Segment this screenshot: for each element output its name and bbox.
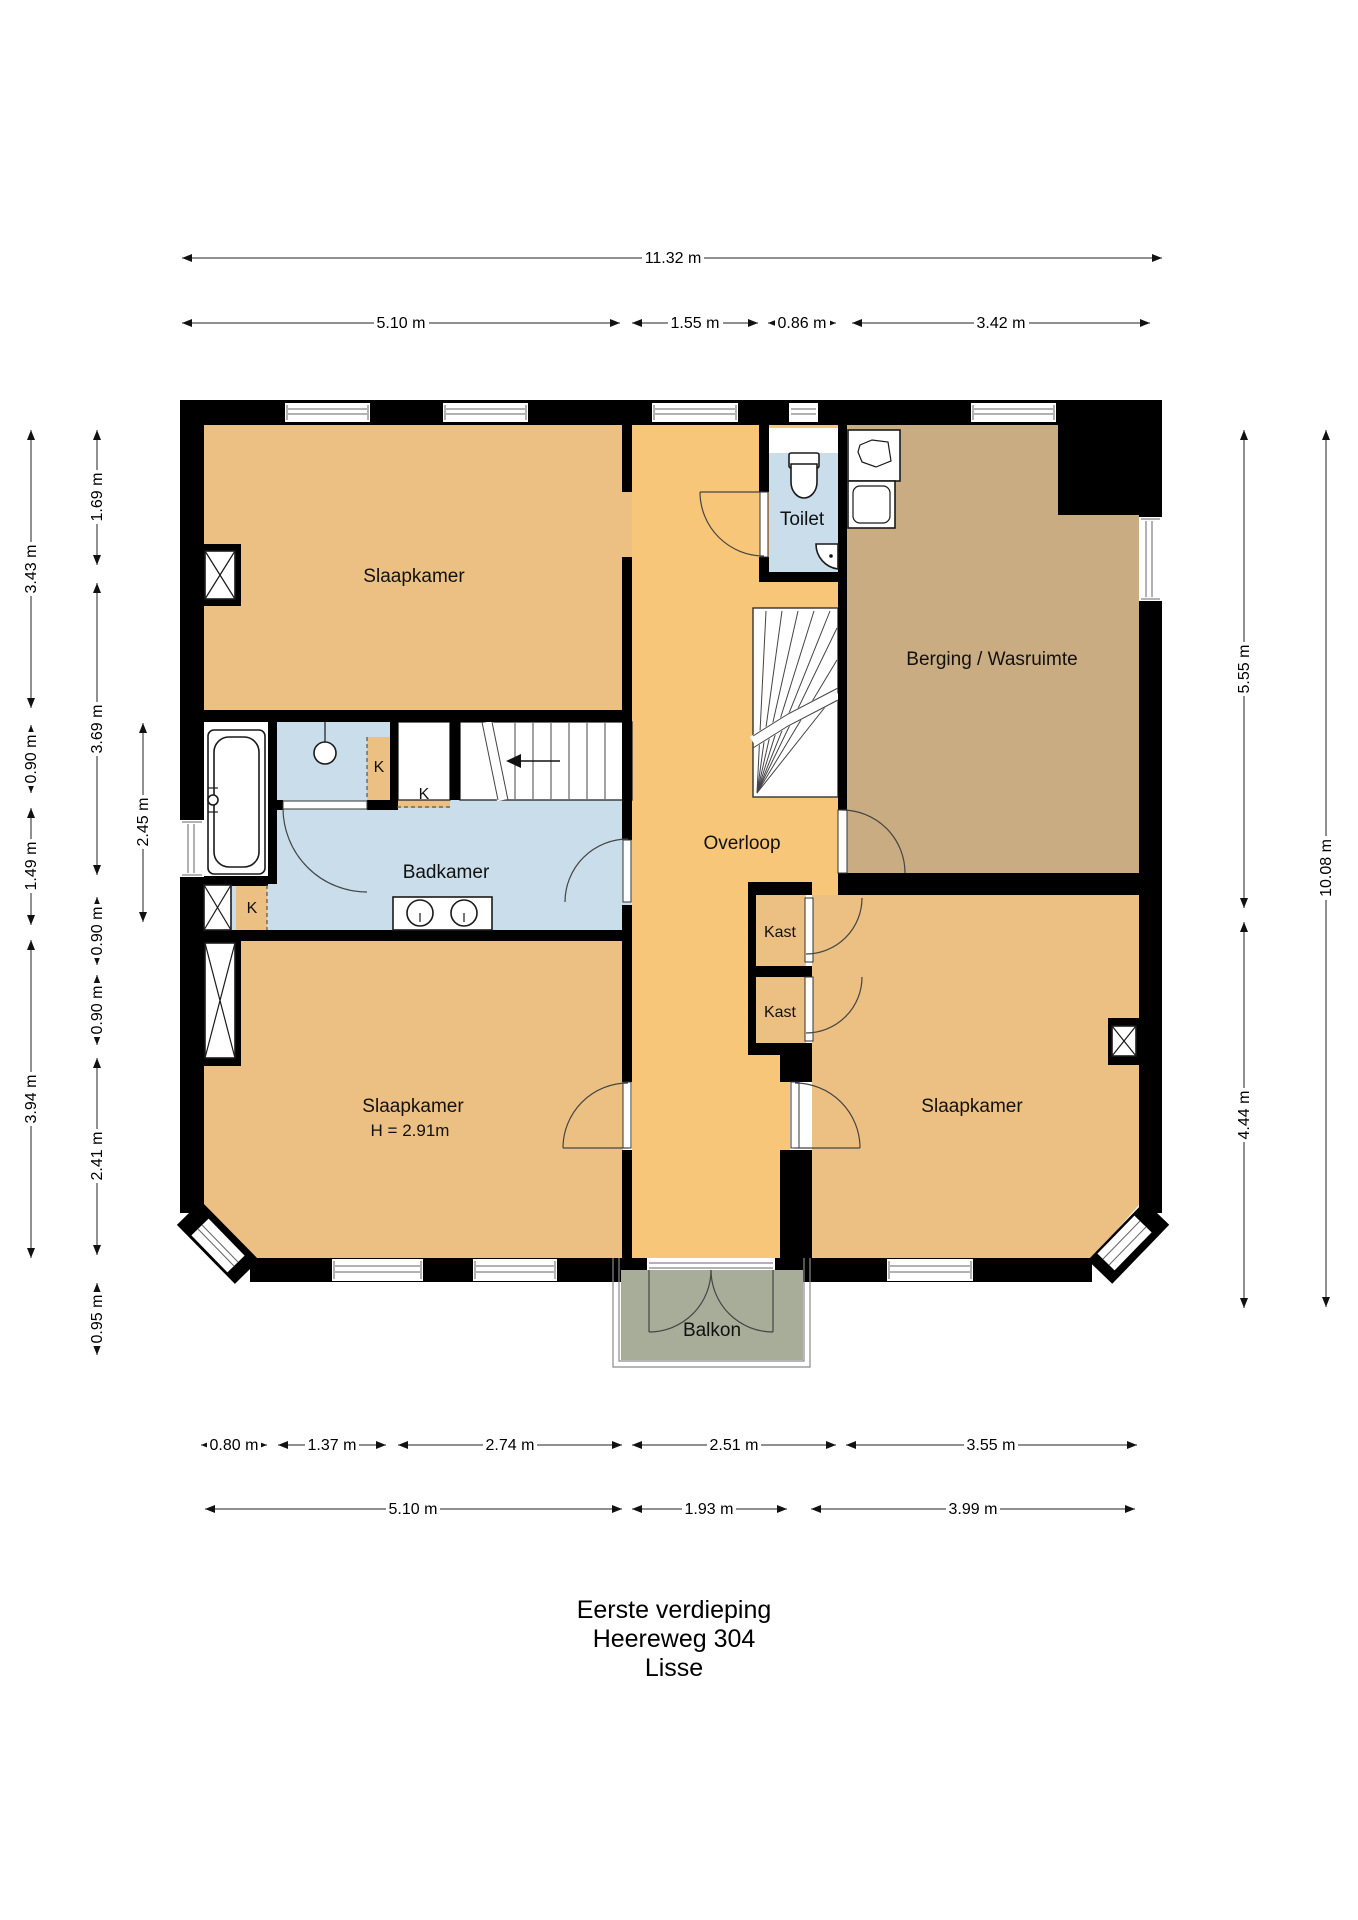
- dim-bottom-l3: 3.99 m: [811, 1501, 1135, 1518]
- floorplan-drawing: Slaapkamer Toilet Berging / Wasruimte Ov…: [0, 0, 1358, 1920]
- dim-left-outer-3: 1.49 m: [23, 808, 40, 925]
- title-address: Heereweg 304: [593, 1625, 756, 1653]
- svg-text:1.49 m: 1.49 m: [23, 842, 40, 891]
- window-bottom-1: [332, 1259, 423, 1281]
- svg-text:2.41 m: 2.41 m: [89, 1132, 106, 1181]
- balkon: [613, 1258, 810, 1367]
- dim-left-outer-1: 3.43 m: [23, 430, 40, 708]
- dim-bottom-u1: 0.80 m: [201, 1437, 267, 1454]
- label-slaapkamer2: Slaapkamer: [362, 1096, 464, 1117]
- svg-text:3.43 m: 3.43 m: [23, 545, 40, 594]
- dim-bottom-l2: 1.93 m: [632, 1501, 787, 1518]
- stairwell-straight-flight: [398, 722, 632, 800]
- dim-right-outer-1: 10.08 m: [1318, 430, 1335, 1307]
- svg-text:3.55 m: 3.55 m: [967, 1437, 1016, 1454]
- svg-text:2.51 m: 2.51 m: [710, 1437, 759, 1454]
- svg-text:1.69 m: 1.69 m: [89, 473, 106, 522]
- bathtub: [208, 730, 265, 874]
- dim-left-middle-2: 3.69 m: [89, 583, 106, 875]
- title-floor: Eerste verdieping: [577, 1596, 772, 1624]
- dim-right-inner-1: 5.55 m: [1236, 430, 1253, 908]
- flue-slaapkamer3: [1112, 1026, 1136, 1056]
- window-top-toilet: [789, 403, 818, 422]
- room-slaapkamer-bottomright: [812, 895, 1139, 1258]
- label-toilet: Toilet: [780, 509, 825, 530]
- svg-text:3.99 m: 3.99 m: [949, 1501, 998, 1518]
- svg-text:0.90 m: 0.90 m: [89, 907, 106, 956]
- svg-text:1.37 m: 1.37 m: [308, 1437, 357, 1454]
- svg-text:0.95 m: 0.95 m: [89, 1295, 106, 1344]
- svg-text:2.74 m: 2.74 m: [486, 1437, 535, 1454]
- dim-left-middle-1: 1.69 m: [89, 430, 106, 565]
- window-top-overloop: [652, 403, 738, 422]
- label-slaapkamer1: Slaapkamer: [363, 566, 465, 587]
- window-bottom-3: [887, 1259, 973, 1281]
- window-bottom-2: [473, 1259, 557, 1281]
- double-washbasin: [393, 897, 492, 930]
- svg-text:0.80 m: 0.80 m: [210, 1437, 259, 1454]
- dim-left-inner-1: 2.45 m: [135, 723, 152, 922]
- flue-slaapkamer2: [199, 935, 241, 1066]
- title-block: Eerste verdieping Heereweg 304 Lisse: [577, 1596, 772, 1682]
- dim-bottom-u5: 3.55 m: [846, 1437, 1137, 1454]
- bathtub-faucet: [208, 795, 218, 805]
- label-overloop: Overloop: [703, 833, 780, 854]
- title-city: Lisse: [645, 1654, 703, 1682]
- toilet-window-recess: [769, 428, 838, 453]
- svg-text:5.10 m: 5.10 m: [377, 315, 426, 332]
- dim-left-middle-5: 2.41 m: [89, 1058, 106, 1255]
- flue-badkamer: [204, 885, 231, 930]
- dim-bottom-l1: 5.10 m: [205, 1501, 622, 1518]
- label-slaapkamer2-height: H = 2.91m: [371, 1121, 450, 1140]
- floorplan-page: Slaapkamer Toilet Berging / Wasruimte Ov…: [0, 0, 1358, 1920]
- label-kast1: Kast: [764, 924, 797, 941]
- window-top-1: [285, 403, 370, 422]
- svg-text:3.94 m: 3.94 m: [23, 1075, 40, 1124]
- dim-right-inner-2: 4.44 m: [1236, 922, 1253, 1308]
- room-fills: [204, 425, 1139, 1258]
- dim-left-middle-3: 0.90 m: [89, 897, 106, 965]
- laundry-sink: [848, 430, 900, 481]
- dimensions-top: 11.32 m 5.10 m 1.55 m 0.86 m 3.42 m: [182, 250, 1162, 332]
- label-kast2: Kast: [764, 1004, 797, 1021]
- dim-top-seg1: 5.10 m: [182, 315, 620, 332]
- dimensions-right: 5.55 m 4.44 m 10.08 m: [1236, 430, 1335, 1308]
- svg-text:0.86 m: 0.86 m: [778, 315, 827, 332]
- label-berging: Berging / Wasruimte: [906, 649, 1077, 670]
- svg-text:1.55 m: 1.55 m: [671, 315, 720, 332]
- dim-left-middle-6: 0.95 m: [89, 1283, 106, 1355]
- flue-slaapkamer1: [199, 544, 241, 606]
- label-k3: K: [247, 900, 258, 917]
- dim-bottom-u4: 2.51 m: [632, 1437, 836, 1454]
- svg-text:5.10 m: 5.10 m: [389, 1501, 438, 1518]
- window-top-berging: [971, 403, 1056, 422]
- stairwell-winder: [753, 608, 838, 797]
- dim-left-outer-2: 0.90 m: [23, 725, 40, 793]
- svg-text:10.08 m: 10.08 m: [1318, 839, 1335, 897]
- window-right-berging: [1139, 517, 1162, 601]
- svg-text:5.55 m: 5.55 m: [1236, 645, 1253, 694]
- dim-left-middle-4: 0.90 m: [89, 975, 106, 1045]
- toilet-bowl: [789, 453, 819, 498]
- label-badkamer: Badkamer: [403, 862, 490, 883]
- dim-top-seg2: 1.55 m: [632, 315, 758, 332]
- window-left-badkamer: [180, 820, 204, 877]
- dim-left-outer-4: 3.94 m: [23, 940, 40, 1258]
- dim-bottom-u2: 1.37 m: [278, 1437, 386, 1454]
- dim-top-seg3: 0.86 m: [768, 315, 836, 332]
- dimensions-left: 3.43 m 0.90 m 1.49 m 3.94 m 1.69 m 3.69 …: [23, 430, 152, 1355]
- svg-text:0.90 m: 0.90 m: [89, 986, 106, 1035]
- svg-text:3.42 m: 3.42 m: [977, 315, 1026, 332]
- label-slaapkamer3: Slaapkamer: [921, 1096, 1023, 1117]
- dim-top-seg4: 3.42 m: [852, 315, 1150, 332]
- washing-machine: [848, 481, 895, 528]
- label-k2: K: [419, 786, 430, 803]
- dim-top-total: 11.32 m: [182, 250, 1162, 267]
- svg-text:1.93 m: 1.93 m: [685, 1501, 734, 1518]
- label-balkon: Balkon: [683, 1320, 741, 1341]
- dimensions-bottom: 0.80 m 1.37 m 2.74 m 2.51 m 3.55 m 5.10 …: [201, 1437, 1137, 1518]
- svg-text:4.44 m: 4.44 m: [1236, 1091, 1253, 1140]
- svg-text:0.90 m: 0.90 m: [23, 735, 40, 784]
- label-k1: K: [374, 759, 385, 776]
- svg-text:2.45 m: 2.45 m: [135, 798, 152, 847]
- window-top-2: [443, 403, 528, 422]
- dim-bottom-u3: 2.74 m: [398, 1437, 622, 1454]
- svg-text:3.69 m: 3.69 m: [89, 705, 106, 754]
- svg-text:11.32 m: 11.32 m: [645, 250, 702, 267]
